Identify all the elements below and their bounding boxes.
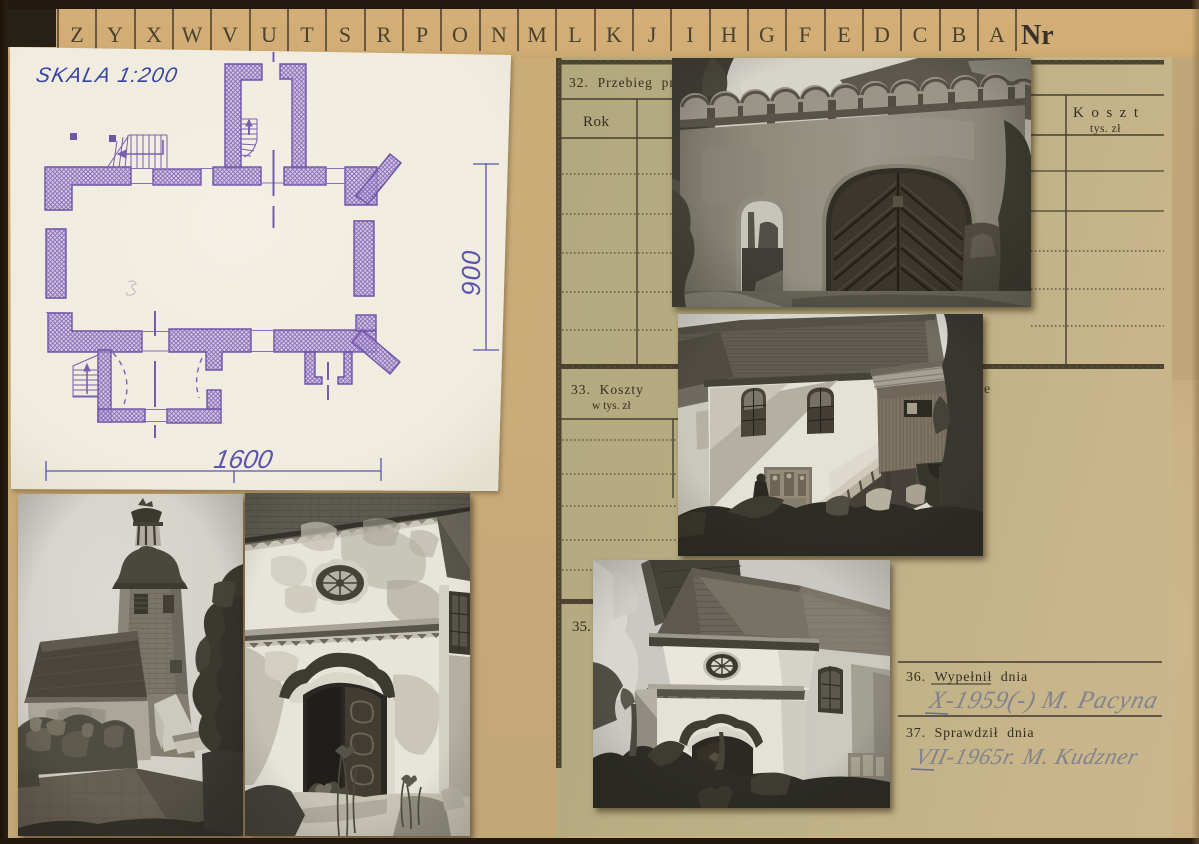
svg-text:L: L: [568, 22, 581, 47]
svg-text:M: M: [527, 22, 547, 47]
svg-text:32. Przebieg prac: 32. Przebieg prac: [569, 75, 689, 90]
svg-text:SKALA 1:200: SKALA 1:200: [34, 64, 181, 87]
svg-text:e: e: [984, 382, 990, 397]
svg-text:900: 900: [456, 250, 486, 296]
svg-text:36. Wypełnił dnia: 36. Wypełnił dnia: [906, 670, 1028, 685]
svg-text:A: A: [989, 22, 1005, 47]
svg-text:C: C: [913, 22, 928, 47]
svg-text:tys. zł: tys. zł: [1090, 123, 1121, 135]
svg-text:G: G: [759, 22, 775, 47]
svg-text:Koszt: Koszt: [1073, 105, 1146, 121]
svg-text:VII-1965r. M. Kudzner: VII-1965r. M. Kudzner: [913, 744, 1142, 770]
svg-text:37. Sprawdził dnia: 37. Sprawdził dnia: [906, 726, 1034, 741]
svg-text:K: K: [606, 22, 622, 47]
svg-text:E: E: [837, 22, 850, 47]
svg-text:H: H: [721, 22, 737, 47]
svg-text:I: I: [686, 22, 693, 47]
svg-text:33. Koszty: 33. Koszty: [571, 382, 644, 397]
svg-text:D: D: [874, 22, 890, 47]
svg-text:X-1959(-) M. Pacyna: X-1959(-) M. Pacyna: [926, 686, 1162, 714]
svg-text:F: F: [799, 22, 811, 47]
svg-text:B: B: [952, 22, 967, 47]
svg-text:w tys. zł: w tys. zł: [592, 400, 631, 412]
svg-text:J: J: [648, 22, 657, 47]
svg-text:35.: 35.: [572, 619, 591, 635]
svg-text:Nr: Nr: [1021, 20, 1054, 51]
svg-text:Rok: Rok: [583, 114, 610, 130]
svg-text:1600: 1600: [212, 444, 275, 474]
